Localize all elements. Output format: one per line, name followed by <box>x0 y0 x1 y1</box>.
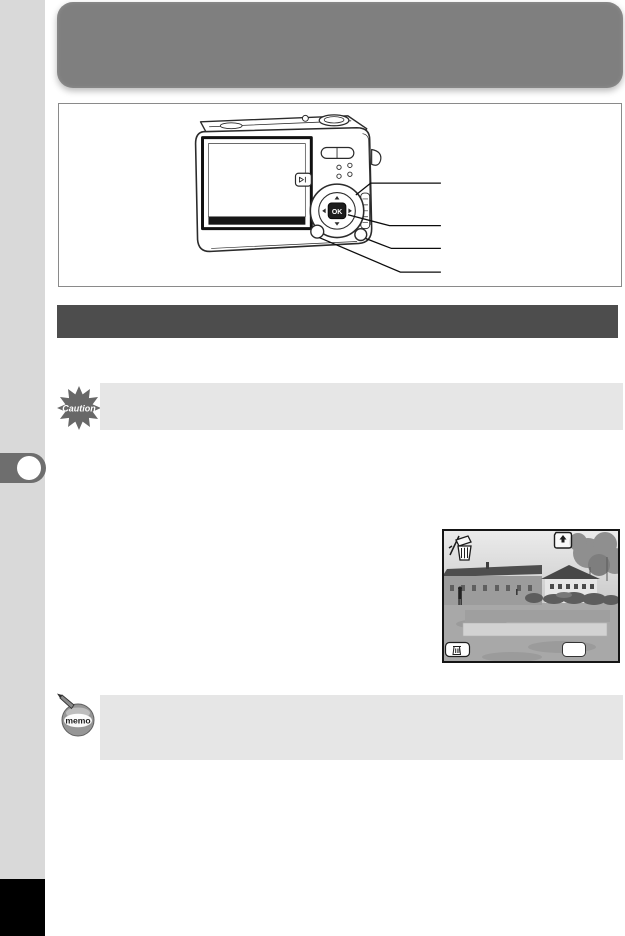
chapter-tab <box>0 453 46 483</box>
caution-icon: Caution <box>56 385 102 431</box>
power-button <box>302 115 308 121</box>
camera-figure-box: OK <box>58 103 622 287</box>
fn-button <box>355 229 367 241</box>
lcd-screenshot <box>442 529 620 663</box>
camera-illustration: OK <box>59 104 621 286</box>
ok-button-label: OK <box>332 209 342 216</box>
menu-bar-primary[interactable] <box>465 610 610 622</box>
section-title-bar <box>57 305 618 338</box>
memo-icon: memo <box>55 691 101 739</box>
memory-card-icon <box>555 533 572 549</box>
memo-box <box>100 695 623 760</box>
strap-lug <box>372 150 381 166</box>
callout-line-3 <box>366 239 441 249</box>
chapter-sidebar-strip <box>0 0 45 879</box>
zoom-rocker <box>321 148 354 159</box>
caution-icon-label: Caution <box>62 404 96 414</box>
chapter-tab-dot <box>17 456 41 480</box>
trash-soft-button[interactable] <box>446 643 470 657</box>
manual-page: OK <box>0 0 625 936</box>
page-title-banner <box>57 2 623 88</box>
page-number-block <box>0 879 45 936</box>
ok-soft-button[interactable] <box>563 643 586 657</box>
menu-button <box>311 225 324 238</box>
caution-box <box>100 383 623 430</box>
memo-icon-label: memo <box>65 716 90 726</box>
menu-bar-secondary[interactable] <box>463 623 607 636</box>
